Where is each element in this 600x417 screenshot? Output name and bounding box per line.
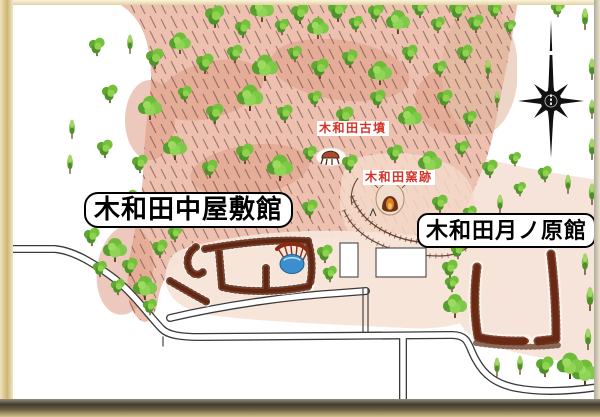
tree-icon	[89, 38, 105, 56]
tree-icon	[517, 356, 523, 375]
tree-icon	[97, 140, 113, 158]
label-tsukinohara-castle: 木和田月ノ原館	[417, 213, 596, 248]
tree-icon	[494, 358, 500, 377]
building-large	[376, 248, 426, 277]
building-small	[340, 243, 358, 277]
buildings	[340, 243, 426, 277]
kofun-mound	[316, 148, 346, 166]
label-naka-yashiki-castle: 木和田中屋敷館	[84, 192, 293, 228]
label-kiln-site: 木和田窯跡	[363, 170, 435, 185]
tree-icon	[84, 228, 100, 246]
tree-icon	[589, 58, 595, 80]
label-kofun-tomb: 木和田古墳	[317, 121, 389, 136]
tree-icon	[67, 155, 73, 174]
tree-icon	[589, 100, 595, 119]
tree-icon	[127, 35, 133, 54]
illustrated-castle-map: 木和田古墳 木和田窯跡 木和田中屋敷館 木和田月ノ原館	[0, 0, 600, 417]
tree-icon	[102, 85, 118, 103]
tree-icon	[69, 120, 75, 139]
tree-icon	[589, 138, 595, 160]
tree-icon	[536, 357, 554, 378]
